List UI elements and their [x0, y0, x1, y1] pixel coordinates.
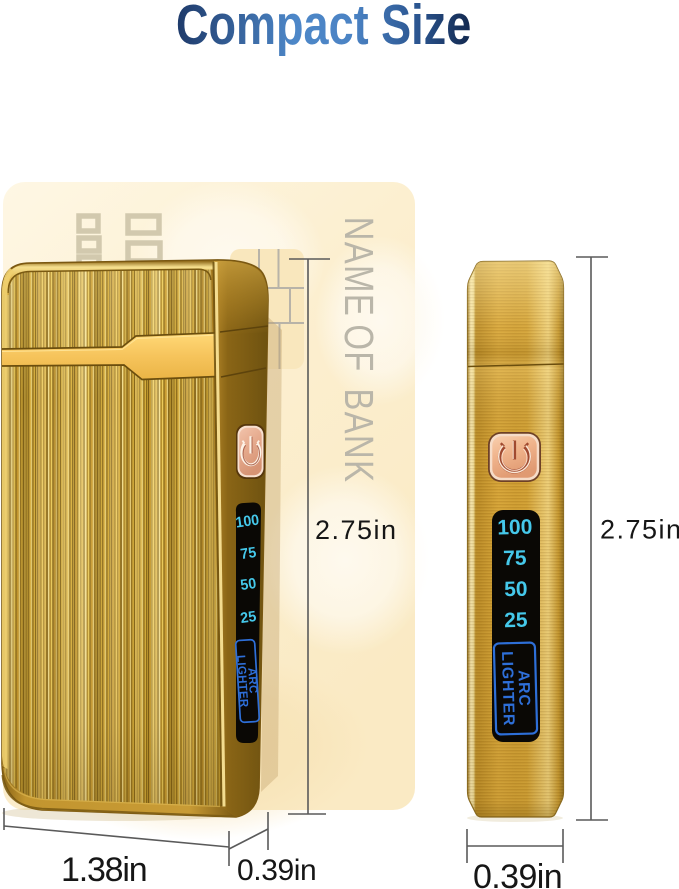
- svg-text:NAME: NAME: [336, 217, 382, 317]
- svg-text:100: 100: [497, 516, 533, 540]
- svg-text:50: 50: [504, 578, 528, 602]
- svg-text:0.39in: 0.39in: [237, 854, 316, 887]
- svg-text:75: 75: [503, 547, 527, 571]
- svg-text:0.39in: 0.39in: [473, 858, 562, 889]
- svg-text:Compact Size: Compact Size: [176, 0, 471, 56]
- svg-text:1.38in: 1.38in: [61, 851, 146, 889]
- svg-text:2.75in: 2.75in: [315, 515, 398, 545]
- svg-text:LIGHTER: LIGHTER: [498, 651, 517, 726]
- svg-text:100: 100: [235, 512, 261, 532]
- svg-text:25: 25: [239, 609, 257, 627]
- svg-text:OF: OF: [336, 324, 382, 372]
- svg-text:25: 25: [504, 609, 528, 633]
- svg-text:75: 75: [239, 545, 257, 563]
- svg-text:BANK: BANK: [336, 388, 382, 483]
- svg-text:50: 50: [239, 576, 257, 594]
- svg-text:2.75in: 2.75in: [600, 515, 679, 545]
